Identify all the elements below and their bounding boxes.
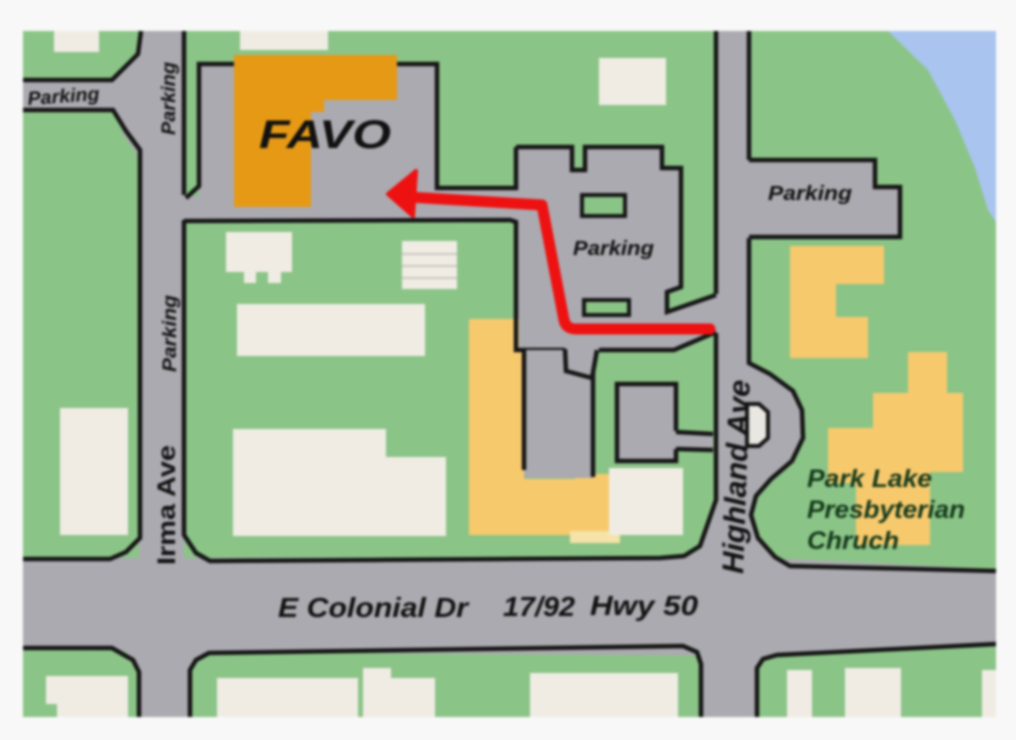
svg-text:Highland Ave: Highland Ave (717, 379, 757, 574)
svg-text:Parking: Parking (160, 295, 181, 372)
svg-text:Parking: Parking (768, 183, 852, 205)
svg-text:FAVO: FAVO (259, 113, 391, 157)
svg-text:Presbyterian: Presbyterian (807, 496, 965, 524)
svg-text:Park Lake: Park Lake (807, 465, 932, 493)
svg-text:Chruch: Chruch (807, 527, 899, 555)
svg-text:Hwy 50: Hwy 50 (590, 590, 698, 621)
svg-text:Parking: Parking (159, 62, 180, 135)
svg-text:Parking: Parking (573, 238, 654, 260)
svg-text:E Colonial Dr: E Colonial Dr (278, 592, 470, 623)
svg-text:Irma Ave: Irma Ave (153, 445, 181, 565)
svg-text:17/92: 17/92 (503, 591, 575, 622)
